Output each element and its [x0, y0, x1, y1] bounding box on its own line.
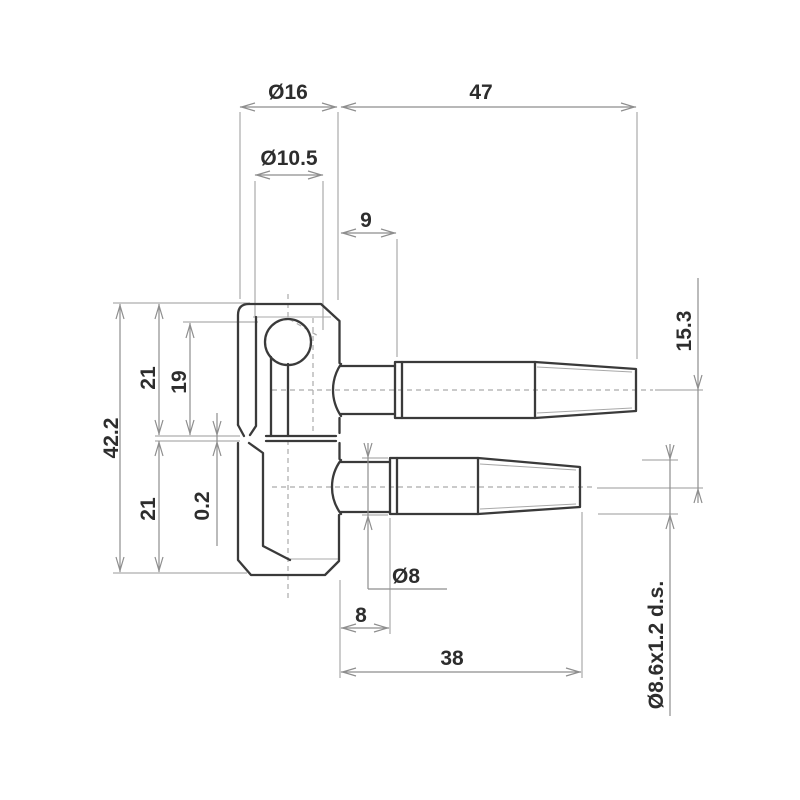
- dimension-lines: [120, 107, 698, 716]
- dim-label-lower-pin-diameter: Ø8: [392, 565, 420, 588]
- dim-label-upper-half-height: 21: [137, 366, 160, 390]
- dim-label-body-diameter: Ø16: [268, 81, 308, 104]
- dim-label-upper-pin-length: 47: [469, 81, 492, 104]
- dim-label-lower-pin-length: 38: [440, 647, 464, 670]
- centerlines: [272, 294, 653, 600]
- hinge-body: [238, 304, 636, 575]
- drawing-area: Ø16 47 Ø10.5 9 15.3 21 19 42.2 21 0.2 Ø8…: [0, 0, 800, 800]
- dim-label-lower-neck-length: 8: [355, 604, 367, 627]
- dim-label-bore-diameter: Ø10.5: [260, 147, 318, 170]
- dim-label-thread-spec: Ø8.6x1.2 d.s.: [645, 581, 668, 709]
- extension-lines: [113, 112, 703, 678]
- dim-label-upper-neck-length: 9: [360, 209, 372, 232]
- dim-label-pin-axis-offset: 15.3: [673, 311, 696, 352]
- dim-label-lower-half-height: 21: [137, 497, 160, 521]
- dim-label-ball-depth: 19: [168, 370, 191, 393]
- dim-label-total-height: 42.2: [100, 418, 123, 459]
- dim-label-gap: 0.2: [191, 491, 214, 520]
- hinge-technical-drawing: Ø16 47 Ø10.5 9 15.3 21 19 42.2 21 0.2 Ø8…: [0, 0, 800, 800]
- part-detail-lines: [253, 317, 632, 559]
